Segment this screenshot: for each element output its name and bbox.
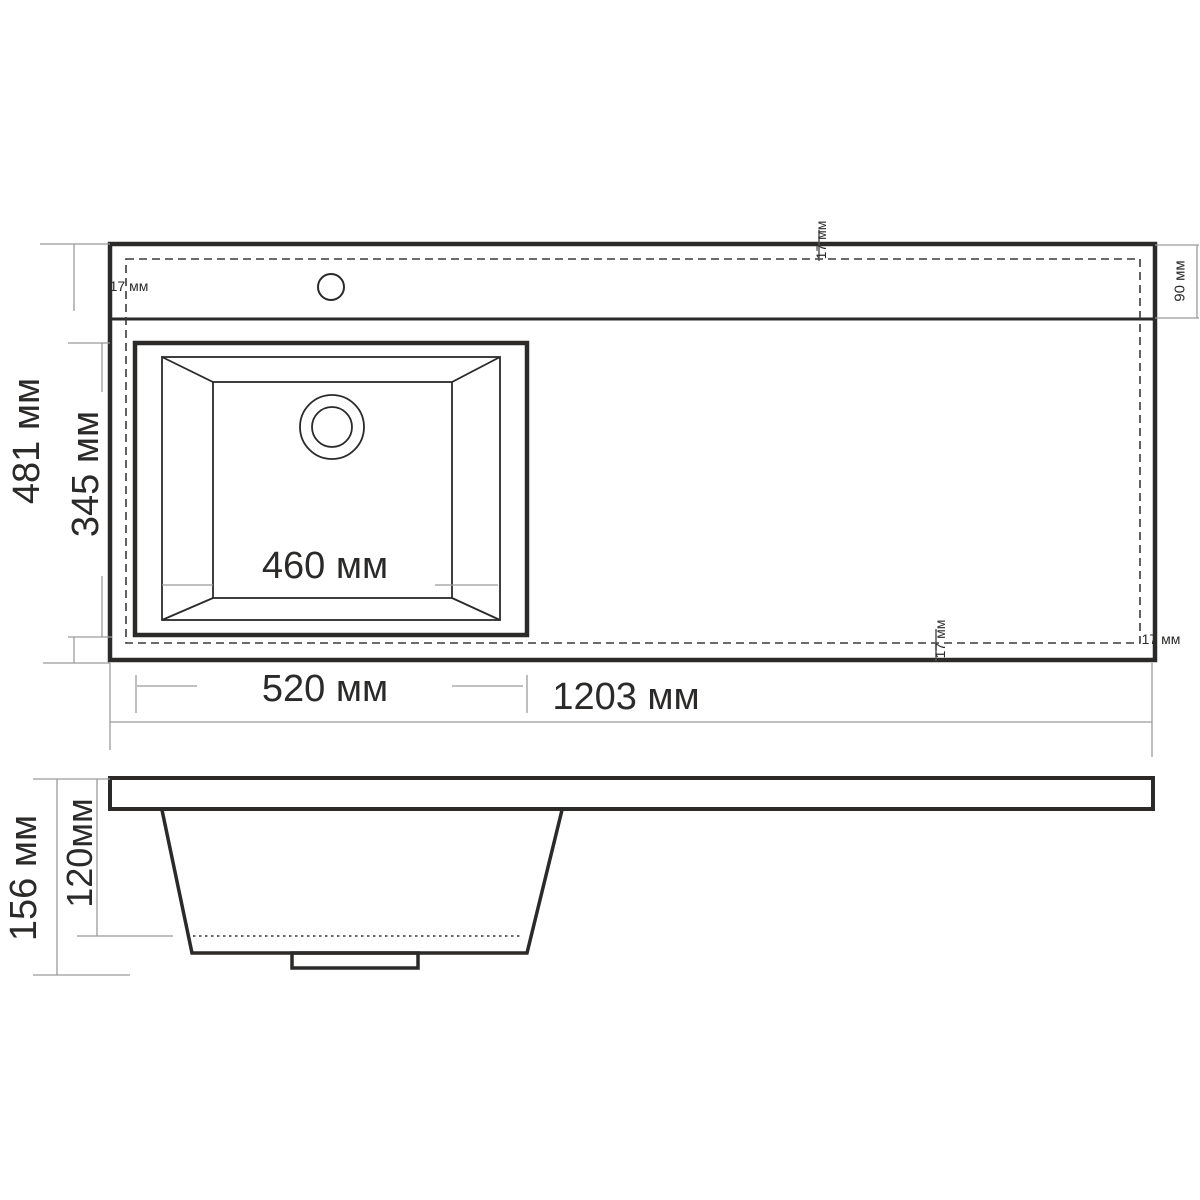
drain-inner-circle xyxy=(312,407,352,447)
drain-notch xyxy=(292,953,418,968)
sink-technical-drawing: 481 мм 345 мм 460 мм 520 мм 1203 мм 90 м… xyxy=(0,0,1200,1200)
bowl-outer-outline xyxy=(135,343,527,635)
dim-bowl-depth-label: 120мм xyxy=(62,798,98,908)
dim-bowl-outer-width-label: 520 мм xyxy=(262,670,388,708)
dim-faucet-deck-depth-label: 90 мм xyxy=(1173,260,1188,301)
dim-total-height-label: 481 мм xyxy=(8,378,46,504)
countertop-slab xyxy=(110,778,1153,809)
faucet-hole xyxy=(318,274,344,300)
dim-margin-top-label: 17 мм xyxy=(814,221,828,260)
side-view-linework xyxy=(110,778,1153,968)
drawing-linework xyxy=(0,0,1200,1200)
bowl-bevel-bottom-right xyxy=(452,598,500,620)
dim-margin-bottom-label: 17 мм xyxy=(933,620,947,659)
margin-ticks xyxy=(819,230,936,661)
dim-margin-bottom-right-label: 17 мм xyxy=(1142,632,1181,646)
bowl-bevel-top-left xyxy=(162,357,213,382)
drain-outer-circle xyxy=(300,395,364,459)
dim-margin-top-left-label: 17 мм xyxy=(110,279,149,293)
dim-bowl-inner-height-label: 345 мм xyxy=(67,411,105,537)
dim-total-width-label: 1203 мм xyxy=(552,678,699,716)
dim-bowl-inner-width-label: 460 мм xyxy=(262,547,388,585)
bowl-bevel-bottom-left xyxy=(162,598,213,620)
top-view-linework xyxy=(110,244,1155,660)
dim-total-depth-label: 156 мм xyxy=(5,815,43,941)
bowl-profile xyxy=(162,810,562,953)
bowl-bevel-top-right xyxy=(452,357,500,382)
